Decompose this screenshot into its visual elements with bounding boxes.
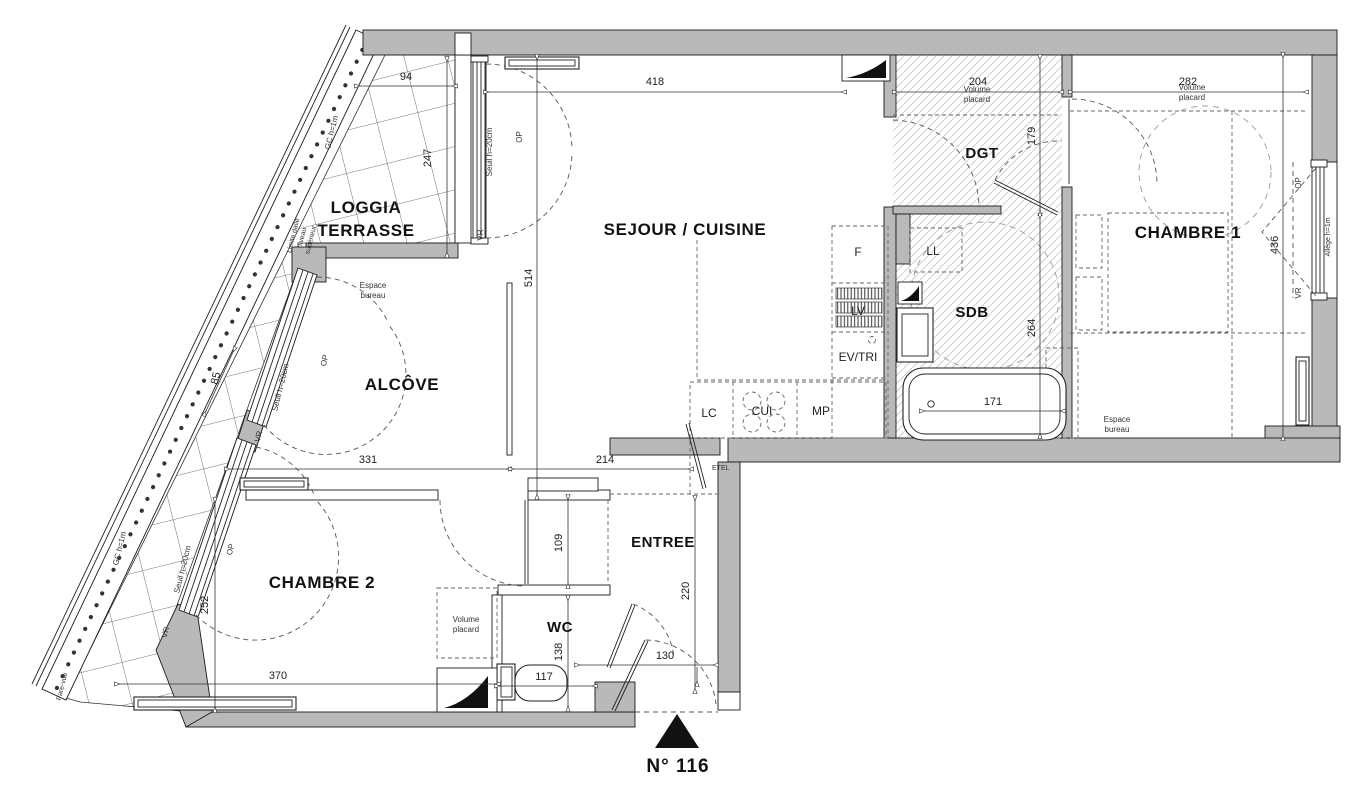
label-chambre2: CHAMBRE 2	[269, 573, 375, 592]
dim-sejour-w: 418	[646, 76, 664, 88]
label-volume-placard-wc-2: placard	[453, 625, 479, 634]
wall-dgt-sdb	[893, 206, 1001, 214]
dim-entree-w: 130	[656, 650, 674, 662]
label-seuil-sejour: Seuil h=20cm	[485, 127, 494, 176]
label-vr-sejour: VR	[476, 229, 485, 240]
evier-drain	[869, 337, 876, 344]
dim-sejour-h: 514	[523, 269, 535, 287]
label-lave-vaisselle: LV	[851, 304, 865, 318]
label-vr-alcove: VR	[253, 430, 264, 443]
label-wc: WC	[547, 619, 573, 636]
dim-passage-w: 214	[596, 454, 614, 466]
label-lave-cuisine: LC	[701, 406, 717, 420]
wall-alcove-ch2	[246, 490, 438, 500]
pocket-door-box	[528, 478, 598, 491]
dim-couloir-h: 109	[553, 534, 565, 552]
wall-top	[363, 30, 1337, 55]
wall-wc-top	[498, 585, 610, 595]
dim-chambre1-h: 436	[1269, 236, 1281, 254]
wall-bottom	[186, 712, 635, 727]
label-alcove: ALCÔVE	[365, 375, 439, 394]
label-chambre1: CHAMBRE 1	[1135, 223, 1241, 242]
nightstand	[1076, 215, 1102, 268]
radiator-alcove	[240, 478, 308, 490]
dim-dgt-w: 204	[969, 76, 987, 88]
label-volume-placard-ch1-2: placard	[1179, 93, 1205, 102]
label-lave-linge: LL	[926, 244, 940, 258]
label-fridge: F	[854, 245, 861, 259]
door-chambre1	[1069, 99, 1157, 184]
label-op-chambre2: OP	[225, 543, 237, 556]
wall-right-lower	[1312, 298, 1337, 440]
entrance-triangle	[655, 714, 699, 748]
floorplan-screenshot: LOGGIA TERRASSE SEJOUR / CUISINE DGT CHA…	[0, 0, 1367, 800]
turning-circle-ch1	[1139, 106, 1271, 238]
radiator-chambre1	[1296, 357, 1309, 425]
kitchen-counter	[690, 382, 886, 438]
wall-bottom-right	[728, 438, 1340, 462]
dim-chambre1-w: 282	[1179, 76, 1197, 88]
label-vr-chambre1: VR	[1294, 287, 1303, 298]
label-unit-number: N° 116	[646, 756, 709, 777]
label-dgt: DGT	[965, 145, 998, 162]
wall-top-junction	[455, 33, 471, 55]
dim-wc-w: 117	[535, 671, 553, 683]
label-allege-chambre1: Allège h=1m	[1325, 217, 1332, 256]
wall-kitchen-bottom	[610, 438, 720, 455]
radiator-sejour	[505, 57, 579, 69]
dim-bain-w: 171	[984, 396, 1002, 408]
wall-loggia-pillar	[455, 55, 471, 243]
wall-alcove-sejour-stub	[507, 283, 512, 455]
label-op-sejour: OP	[515, 131, 524, 143]
label-volume-placard-dgt-2: placard	[964, 95, 990, 104]
nightstand	[1076, 277, 1102, 330]
label-op-alcove: OP	[319, 354, 331, 367]
loggia-terrace	[32, 25, 455, 712]
dim-loggia-h: 247	[422, 149, 434, 167]
dim-wc-h: 138	[553, 643, 565, 661]
label-espace-bureau-ch1-1: Espace	[1104, 415, 1131, 424]
dim-sdb-h: 264	[1026, 319, 1038, 337]
wall-right-upper	[1312, 55, 1337, 162]
label-cuisiniere: CUI	[752, 404, 773, 418]
wall-sdb-stub	[896, 214, 910, 264]
label-etel: ETEL	[712, 465, 730, 472]
label-op-chambre1: OP	[1294, 177, 1303, 189]
wall-dgt-ch1-upper	[1062, 55, 1072, 97]
label-volume-placard-wc-1: Volume	[453, 615, 480, 624]
label-sdb: SDB	[955, 304, 988, 321]
label-loggia-line1: LOGGIA	[331, 198, 402, 217]
label-espace-bureau-loggia-1: Espace	[360, 281, 387, 290]
floor-plan-svg: LOGGIA TERRASSE SEJOUR / CUISINE DGT CHA…	[0, 0, 1367, 800]
dim-alcove-w: 331	[359, 454, 377, 466]
dim-loggia-w: 94	[400, 71, 412, 83]
dim-chambre2-h: 252	[199, 596, 211, 614]
wall-entree-right	[718, 462, 740, 692]
wall-corridor-top	[528, 490, 610, 500]
wall-loggia-bottom	[306, 243, 458, 258]
label-entree: ENTREE	[631, 534, 695, 551]
label-loggia-line2: TERRASSE	[317, 221, 414, 240]
door-jamb-entrance	[718, 692, 740, 710]
lv-grill	[836, 288, 882, 299]
label-meuble-plan: MP	[812, 404, 830, 418]
door-chambre2	[440, 500, 528, 586]
dim-dgt-h: 179	[1026, 127, 1038, 145]
label-sejour: SEJOUR / CUISINE	[604, 220, 767, 239]
dim-entree-h: 220	[680, 582, 692, 600]
wall-bottom-step	[595, 682, 635, 712]
label-evier-tri: EV/TRI	[839, 350, 878, 364]
label-espace-bureau-loggia-2: bureau	[361, 291, 386, 300]
dim-chambre2-w: 370	[269, 670, 287, 682]
label-espace-bureau-ch1-2: bureau	[1105, 425, 1130, 434]
